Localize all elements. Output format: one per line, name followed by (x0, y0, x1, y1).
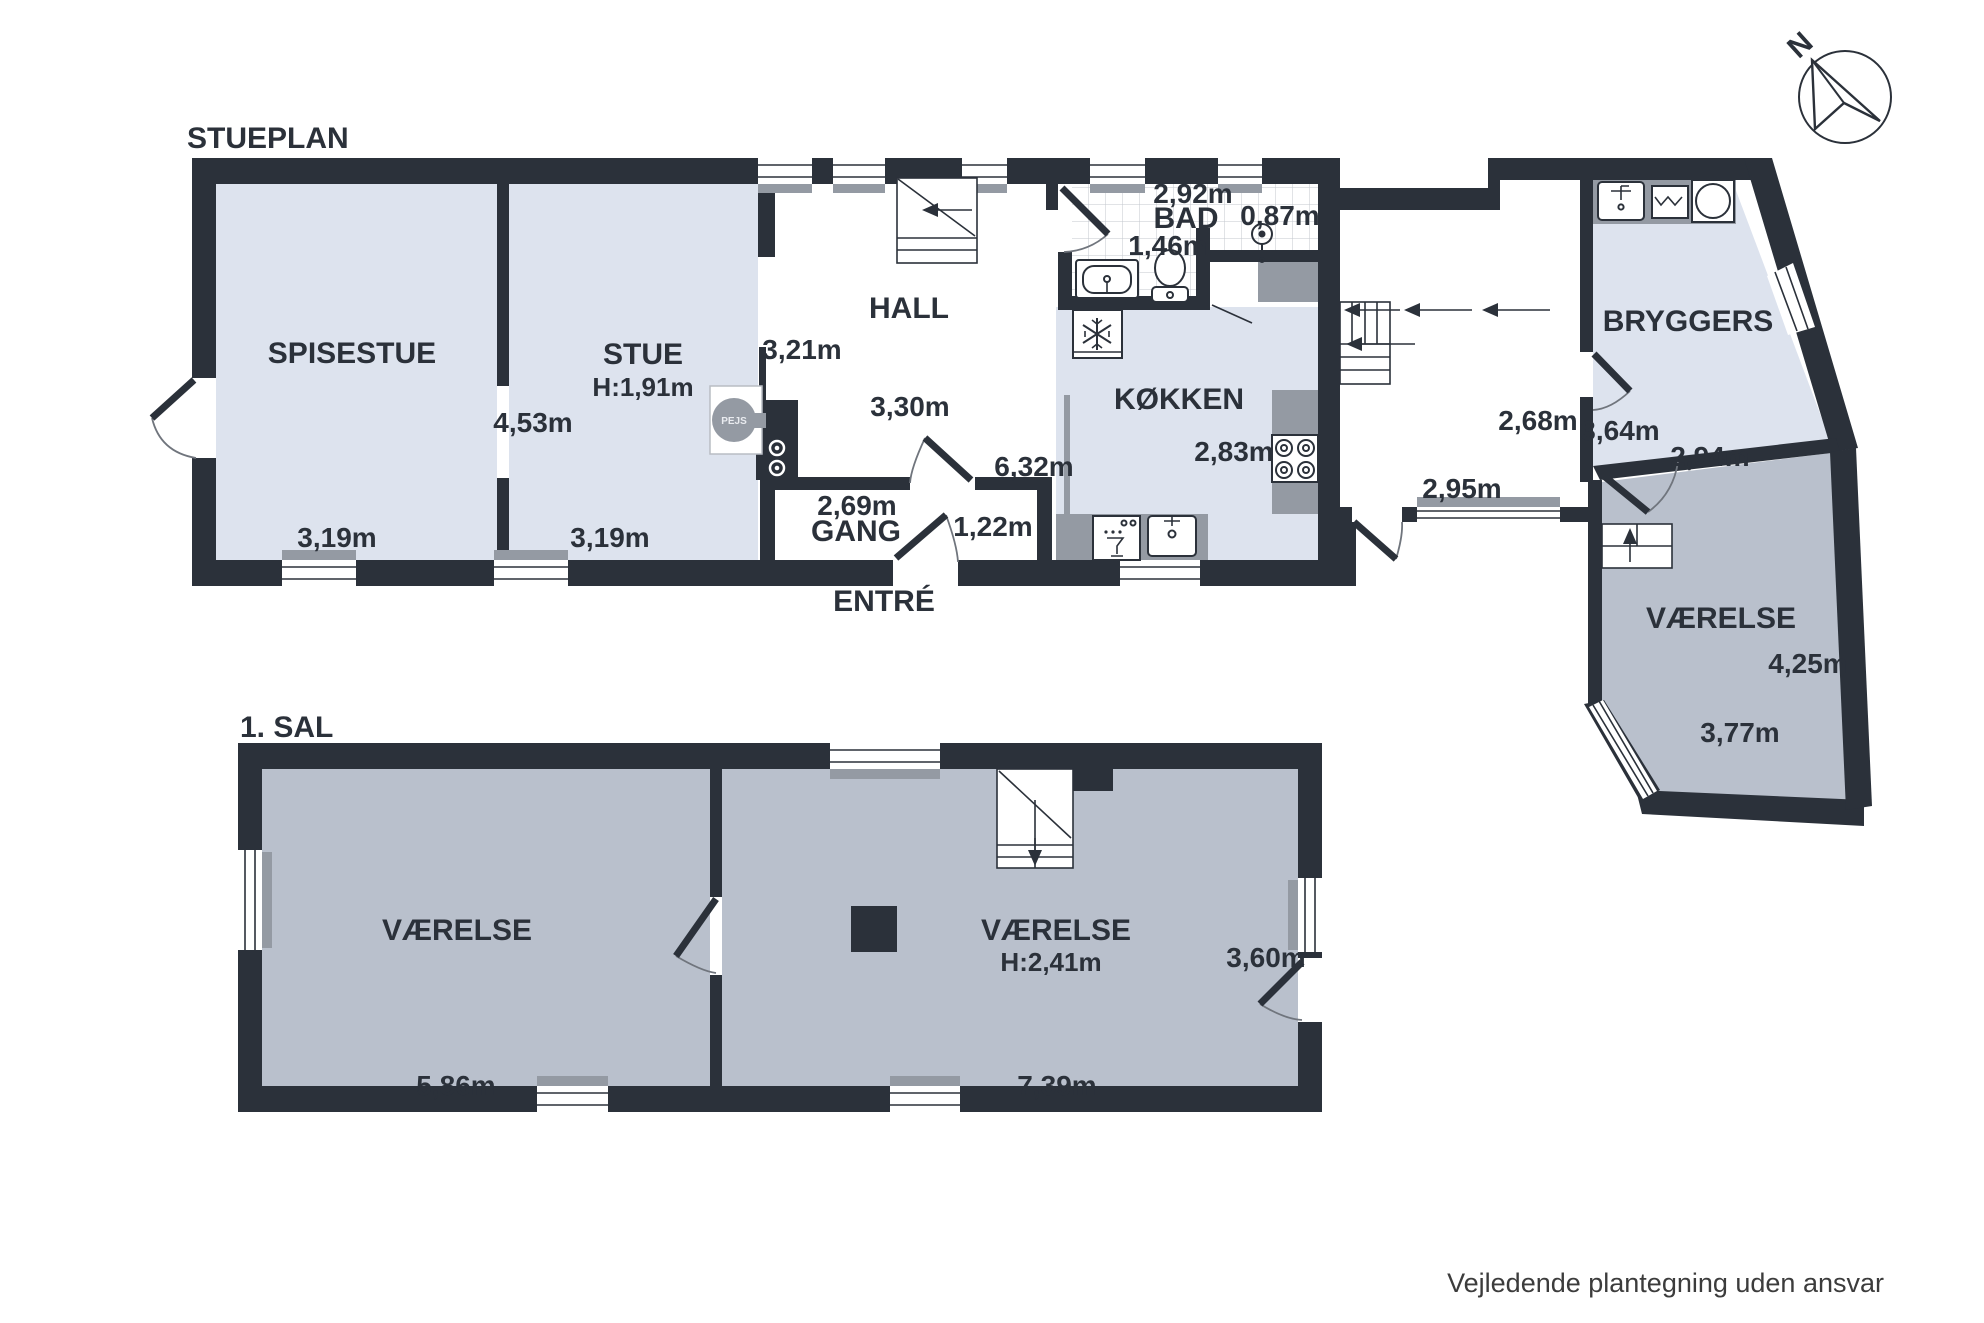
label-vaerelse-st: VÆRELSE (1646, 602, 1796, 635)
steps-vaerelse-st (1602, 524, 1672, 568)
dim-vaerelse-right-width: 7,39m (1017, 1070, 1096, 1101)
dim-spisestue-width: 3,19m (297, 522, 376, 553)
label-vaerelse-right: VÆRELSE (981, 914, 1131, 947)
compass-needle (1812, 60, 1880, 129)
title-1sal: 1. SAL (240, 711, 333, 744)
dim-vaerelse-left-width: 5,86m (416, 1070, 495, 1101)
stairs-hall (897, 178, 977, 263)
door-entre (893, 515, 958, 586)
floor-stueplan: PEJS STUEPLAN SPISESTUE 3,19m STUE H:1,9… (152, 122, 1872, 826)
fridge-icon (1073, 310, 1122, 358)
pejs-label: PEJS (721, 416, 747, 427)
bathroom-sink-icon (1076, 260, 1138, 298)
door-spisestue-ext (152, 378, 216, 458)
dim-hall-3: 6,32m (994, 451, 1073, 482)
floorplan-page: PEJS STUEPLAN SPISESTUE 3,19m STUE H:1,9… (0, 0, 1984, 1323)
door-hall-gang (910, 438, 971, 483)
dim-vaerelse-st-2: 3,77m (1700, 717, 1779, 748)
dim-kokken-1: 2,83m (1194, 436, 1273, 467)
dim-hall-1: 3,21m (762, 334, 841, 365)
dishwasher-icon (1093, 516, 1140, 560)
footer-disclaimer: Vejledende plantegning uden ansvar (1447, 1268, 1884, 1298)
utility-sink-icon (1598, 182, 1644, 220)
floorplan-drawing: PEJS STUEPLAN SPISESTUE 3,19m STUE H:1,9… (0, 0, 1984, 1323)
washing-machine-icon (1692, 180, 1734, 222)
dim-vaerelse-right-1: 3,60m (1226, 942, 1305, 973)
kitchen-sink-icon (1148, 516, 1196, 556)
laundry-tub-icon (1652, 186, 1688, 218)
label-hall: HALL (869, 292, 949, 325)
label-entre: ENTRÉ (833, 584, 935, 618)
dim-vaerelse-right-height: H:2,41m (1000, 947, 1101, 977)
stairs-mellemgang (1340, 302, 1550, 384)
dim-bad-3: 0,87m (1240, 200, 1319, 231)
stairs-1sal (997, 769, 1073, 868)
chimney-1sal (851, 906, 897, 952)
label-kokken: KØKKEN (1114, 383, 1244, 416)
dim-stue-depth: 4,53m (493, 407, 572, 438)
dim-stue-height: H:1,91m (592, 372, 693, 402)
label-gang: GANG (811, 515, 901, 548)
closet-appliance (1258, 262, 1318, 302)
dim-bryggers-1: 3,64m (1580, 415, 1659, 446)
compass: N (1781, 26, 1891, 143)
label-stue: STUE (603, 338, 683, 371)
dim-bad-2: 1,46m (1128, 230, 1207, 261)
dim-vaerelse-st-1: 4,25m (1768, 648, 1847, 679)
fireplace-pejs: PEJS (710, 386, 766, 454)
stove-icon (1272, 435, 1318, 482)
title-stueplan: STUEPLAN (187, 122, 349, 155)
door-mellemgang-ext (1352, 507, 1402, 559)
compass-n-label: N (1781, 26, 1819, 65)
dim-gang-2: 1,22m (953, 511, 1032, 542)
label-bryggers: BRYGGERS (1603, 305, 1774, 338)
dim-bryggers-2: 2,94m (1670, 441, 1749, 472)
dim-mellemgang-1: 2,68m (1498, 405, 1577, 436)
dim-mellemgang-2: 2,95m (1422, 473, 1501, 504)
label-vaerelse-left: VÆRELSE (382, 914, 532, 947)
floor-1sal: 1. SAL VÆRELSE 5,86m VÆRELSE H:2,41m 3,6… (238, 711, 1322, 1112)
label-spisestue: SPISESTUE (268, 337, 436, 370)
room-spisestue (216, 184, 497, 562)
dim-hall-2: 3,30m (870, 391, 949, 422)
closet-white (1210, 262, 1258, 302)
dim-stue-width: 3,19m (570, 522, 649, 553)
